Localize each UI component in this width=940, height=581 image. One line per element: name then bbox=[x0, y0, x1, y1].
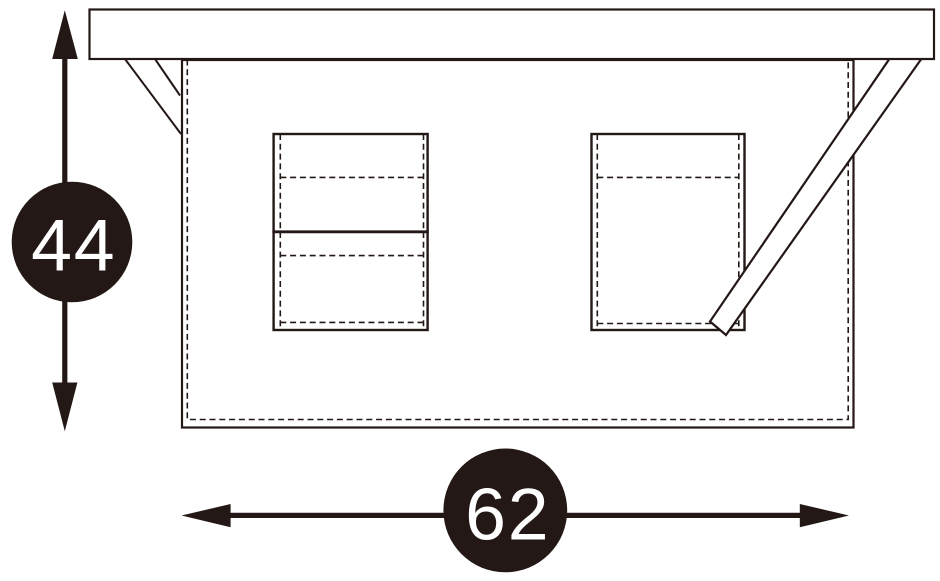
svg-text:62: 62 bbox=[465, 473, 550, 556]
svg-text:44: 44 bbox=[31, 204, 116, 287]
